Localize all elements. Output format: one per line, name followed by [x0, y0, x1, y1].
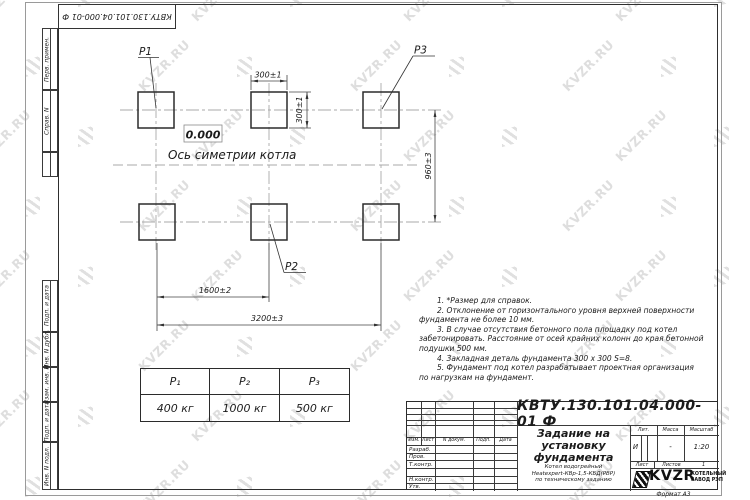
product-line2: Heatexpert-КВр-1,5-КБД(РВР) [517, 471, 630, 477]
note-line: фундамента не более 10 мм. [419, 315, 703, 325]
dim-span-full: 3200±3 [251, 314, 283, 323]
row-utv: Утв. [409, 484, 421, 490]
masshtab-value: 1:20 [684, 443, 719, 451]
technical-notes: 1. *Размер для справок. 2. Отклонение от… [419, 296, 703, 382]
dim-col-height: 300±1 [295, 96, 304, 123]
brand-sub-line2: ЗАВОД РЭП [691, 478, 726, 484]
load-table-header: Р₁ [141, 369, 210, 395]
row-tkontr: Т.контр. [409, 462, 433, 468]
symmetry-axis-caption: Ось симетрии котла [168, 148, 296, 162]
col-list: Лист [421, 438, 435, 443]
centerlines [113, 83, 444, 251]
massa-label: Масса [657, 427, 684, 433]
note-line: 5. Фундамент под котел разрабатывает про… [419, 363, 703, 373]
dim-row-spacing: 960±3 [424, 152, 433, 179]
note-line: по нагрузкам на фундамент. [419, 373, 703, 383]
load-table-header: Р₃ [280, 369, 349, 395]
load-table-value: 1000 кг [210, 395, 279, 421]
doc-number: КВТУ.130.101.04.000-01 Ф [517, 402, 719, 425]
row-prov: Пров. [409, 454, 425, 460]
note-line: 1. *Размер для справок. [419, 296, 703, 306]
pad-label-p1: P1 [139, 46, 152, 58]
col-podp: Подп. [473, 438, 494, 443]
format-note: Формат А3 [629, 491, 718, 498]
col-izm: Изм. [407, 438, 421, 443]
pad-label-p3: P3 [414, 45, 427, 57]
brand-name: KVZR [649, 468, 695, 484]
doc-title-line3: фундамента [517, 451, 630, 464]
title-block: Изм. Лист N докум. Подп. Дата Разраб. Пр… [406, 401, 718, 490]
product-line3: по техническому заданию [517, 477, 630, 483]
load-table-header: Р₂ [210, 369, 279, 395]
note-line: 3. В случае отсутствия бетонного пола пл… [419, 325, 703, 335]
massa-value: - [657, 443, 684, 451]
drawing-sheet: KVZR.RUKVZR.RUKVZR.RUKVZR.RUKVZR.RUKVZR.… [0, 0, 750, 500]
dim-span-half: 1600±2 [199, 286, 231, 295]
pad-label-p2: P2 [285, 261, 298, 273]
load-table-value: 400 кг [141, 395, 210, 421]
load-table-value: 500 кг [280, 395, 349, 421]
lit-label: Лит. [630, 427, 657, 433]
note-line: подушки 500 мм. [419, 344, 703, 354]
dim-col-width: 300±1 [254, 71, 281, 80]
note-line: 2. Отклонение от горизонтального уровня … [419, 306, 703, 316]
col-n-dokum: N докум. [435, 438, 473, 443]
note-line: 4. Закладная деталь фундамента 300 x 300… [419, 354, 703, 364]
masshtab-label: Масштаб [684, 427, 719, 433]
product-line1: Котел водогрейный [517, 464, 630, 470]
brand-subtitle: КОТЕЛЬНЫЙ ЗАВОД РЭП [691, 472, 726, 484]
row-nkontr: Н.контр. [409, 477, 434, 483]
listov-value: 1 [702, 462, 705, 468]
level-mark: 0.000 [186, 129, 221, 142]
load-table: Р₁ Р₂ Р₃ 400 кг 1000 кг 500 кг [140, 368, 350, 422]
lit-value: И [630, 443, 641, 451]
row-razrab: Разраб. [409, 447, 431, 453]
col-data: Дата [494, 438, 517, 443]
note-line: забетонировать. Расстояние от осей крайн… [419, 334, 703, 344]
